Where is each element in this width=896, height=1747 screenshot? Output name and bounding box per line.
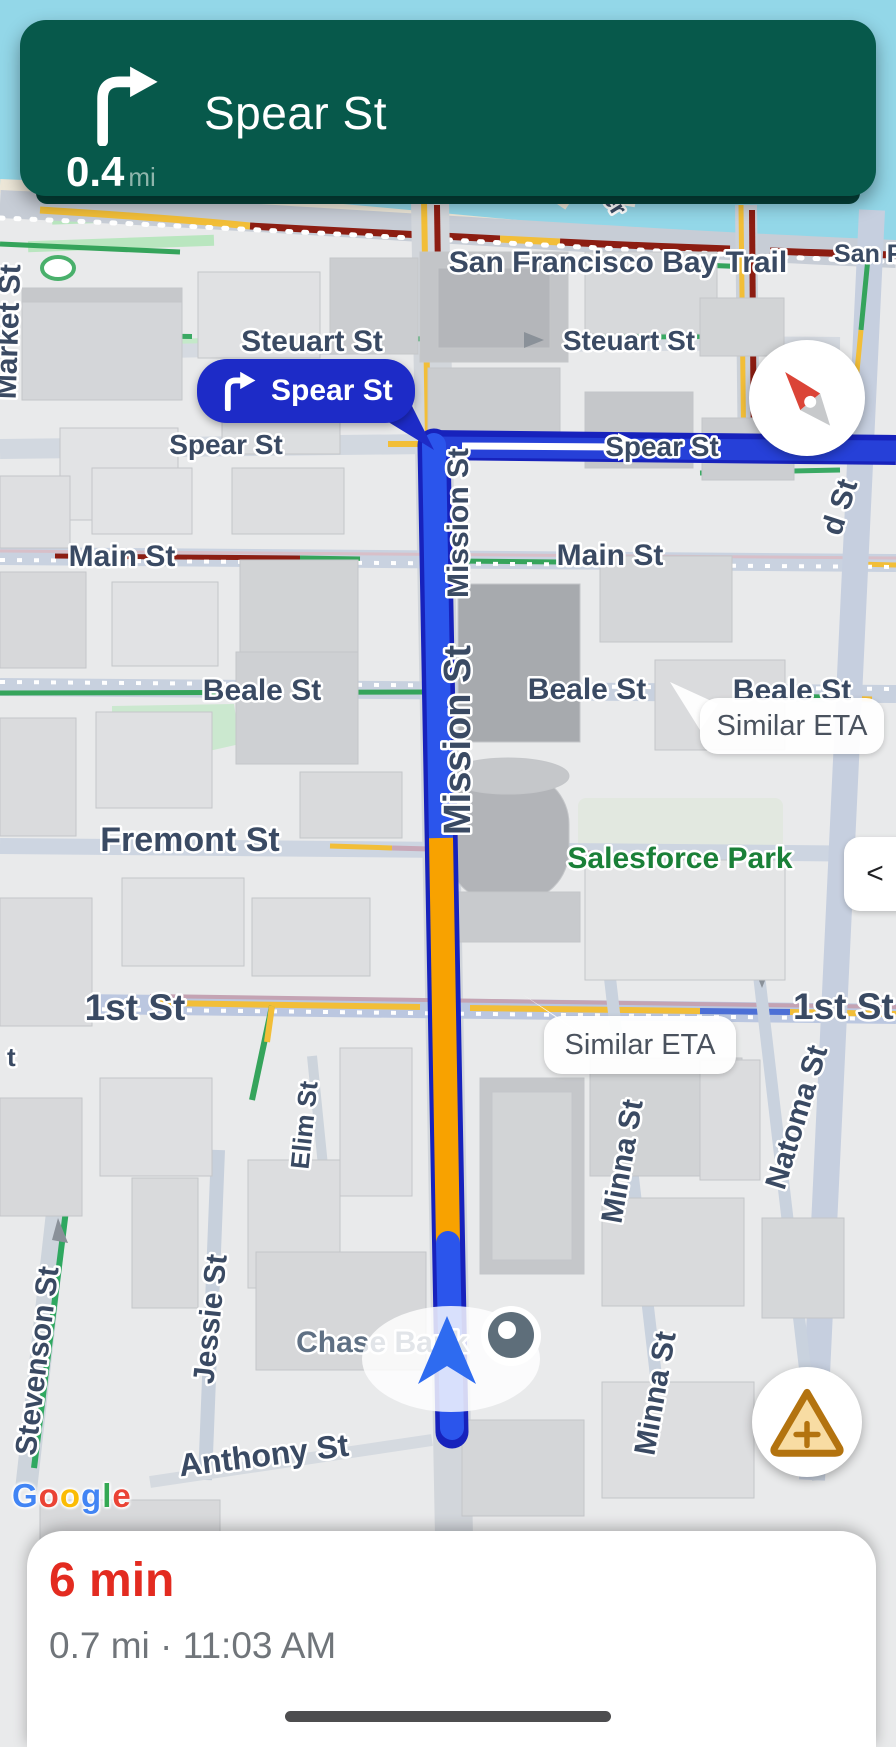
google-letter: l: [102, 1477, 112, 1514]
label-main-st-left: Main St: [69, 540, 176, 573]
label-market-st: Market St: [0, 264, 27, 400]
google-letter: o: [60, 1477, 81, 1514]
navigation-screen: San Francisco Bay Trail San Fran Pier Ma…: [0, 0, 896, 1747]
label-san-fran: San Fran: [834, 240, 896, 268]
alternate-route-eta-2[interactable]: Similar ETA: [544, 1016, 736, 1074]
maneuver-distance: 0.4mi: [66, 148, 156, 196]
maneuver-callout: Spear St: [197, 359, 415, 423]
google-logo: Google: [12, 1477, 132, 1515]
label-1st-st-right: 1st St: [793, 986, 894, 1027]
distance-value: 0.4: [66, 148, 124, 195]
alternate-route-eta-1[interactable]: Similar ETA: [700, 698, 884, 754]
label-bay-trail: San Francisco Bay Trail: [449, 246, 787, 279]
label-spear-st-route: Spear St: [605, 431, 719, 462]
turn-right-icon: [82, 62, 166, 146]
label-beale-st-mid: Beale St: [528, 673, 646, 706]
collapse-panel-button[interactable]: <: [844, 837, 896, 911]
label-steuart-st-left: Steuart St: [241, 325, 383, 358]
compass-icon: [762, 353, 852, 443]
trip-duration: 6 min: [49, 1553, 174, 1608]
google-letter: e: [112, 1477, 131, 1514]
label-salesforce-park: Salesforce Park: [567, 842, 792, 875]
label-fremont-st: Fremont St: [100, 821, 279, 859]
report-button[interactable]: [752, 1367, 862, 1477]
label-mission-st-upper: Mission St: [442, 448, 475, 598]
distance-unit: mi: [128, 162, 155, 192]
report-warning-icon: [768, 1386, 846, 1458]
home-indicator[interactable]: [285, 1711, 611, 1722]
label-left-edge-fragment: t: [7, 1042, 16, 1072]
label-main-st-right: Main St: [557, 539, 664, 572]
google-letter: G: [12, 1477, 39, 1514]
instruction-road: Spear St: [204, 86, 387, 140]
google-letter: o: [39, 1477, 60, 1514]
route-arrow-icon: [462, 446, 618, 447]
collapse-chevron-icon: <: [866, 857, 884, 891]
turn-right-small-icon: [215, 371, 261, 411]
trip-summary-card[interactable]: 6 min 0.7 mi · 11:03 AM: [27, 1531, 876, 1747]
label-spear-st-west: Spear St: [169, 429, 283, 460]
label-steuart-st-right: Steuart St: [563, 325, 695, 356]
location-puck-icon: [412, 1312, 482, 1392]
trip-details: 0.7 mi · 11:03 AM: [49, 1625, 336, 1667]
google-letter: g: [81, 1477, 102, 1514]
label-mission-st-lower: Mission St: [437, 645, 479, 835]
camera-icon: [480, 1305, 542, 1367]
instruction-banner: 0.4mi Spear St: [20, 20, 876, 196]
compass-button[interactable]: [749, 340, 865, 456]
label-beale-st-left: Beale St: [203, 674, 321, 707]
label-1st-st-left: 1st St: [85, 987, 186, 1028]
map-canvas[interactable]: San Francisco Bay Trail San Fran Pier Ma…: [0, 0, 896, 1747]
callout-label: Spear St: [271, 374, 393, 408]
